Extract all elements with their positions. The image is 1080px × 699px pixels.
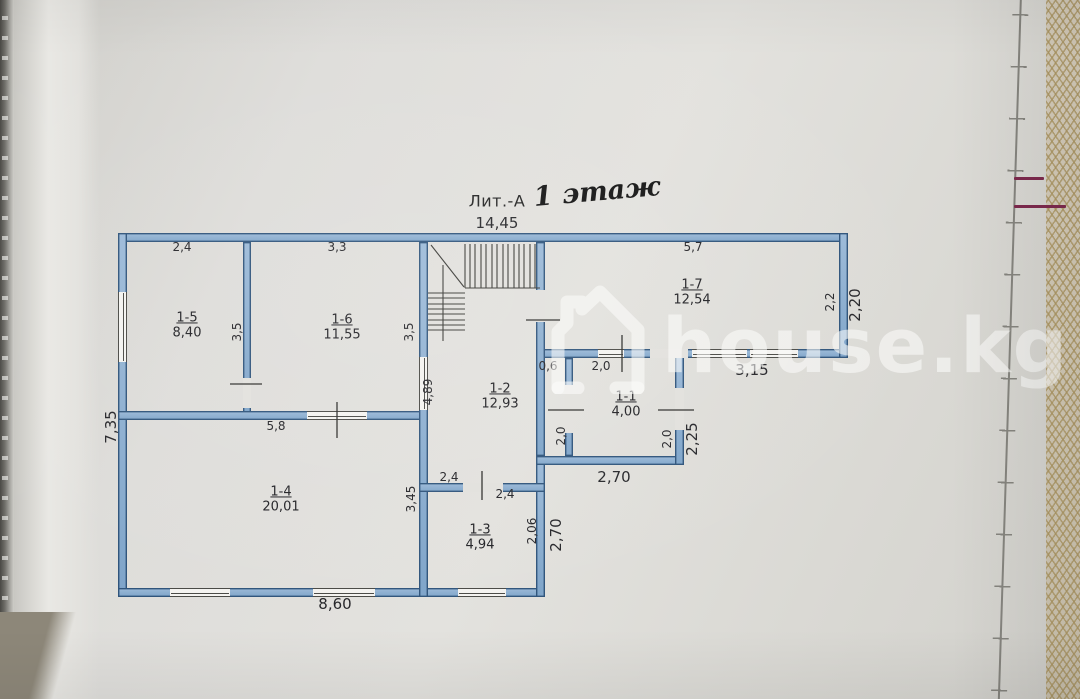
dim-bottom-width: 8,60 — [318, 595, 351, 613]
dim-r4-right: 3,45 — [404, 486, 418, 513]
red-pen-mark — [1014, 177, 1044, 180]
dim-r6-right: 3,5 — [402, 322, 416, 341]
dim-r5-top: 2,4 — [172, 240, 191, 254]
dim-r2-left: 4,89 — [421, 379, 435, 406]
litera-label: Лит.-А — [469, 192, 526, 211]
room-label-1-7: 1-7 12,54 — [673, 278, 710, 307]
dim-r7-right-outer: 2,20 — [846, 288, 864, 321]
dim-r7-top: 5,7 — [683, 240, 702, 254]
dim-r7-bottom: 3,15 — [735, 361, 768, 379]
plan-linework — [0, 0, 1080, 699]
red-pen-mark — [1014, 205, 1066, 208]
dim-corridor-top: 0,6 — [538, 359, 557, 373]
dim-r2-bottom-lower: 2,4 — [495, 487, 514, 501]
dim-r2-bottom-upper: 2,4 — [439, 470, 458, 484]
dim-r6-top: 3,3 — [327, 240, 346, 254]
room-label-1-6: 1-6 11,55 — [323, 313, 360, 342]
dim-left-height: 7,35 — [102, 410, 120, 443]
dim-total-width: 14,45 — [476, 214, 519, 232]
dim-r1-left: 2,0 — [554, 426, 568, 445]
staircase — [428, 244, 540, 341]
room-label-1-3: 1-3 4,94 — [466, 523, 495, 552]
dim-r4-top: 5,8 — [266, 419, 285, 433]
dim-r1-top: 2,0 — [591, 359, 610, 373]
room-label-1-2: 1-2 12,93 — [481, 382, 518, 411]
dim-r5-right: 3,5 — [230, 322, 244, 341]
dim-r3-right-outer: 2,70 — [547, 518, 565, 551]
dim-r7-right-inner: 2,2 — [823, 292, 837, 311]
scanned-floorplan-page: Лит.-А 1 этаж — [0, 0, 1080, 699]
right-lace-edge — [1046, 0, 1080, 699]
bottom-left-dark-corner — [0, 612, 100, 699]
dim-r3-right-inner: 2,06 — [525, 518, 539, 545]
room-label-1-4: 1-4 20,01 — [262, 485, 299, 514]
room-label-1-5: 1-5 8,40 — [173, 311, 202, 340]
room-label-1-1: 1-1 4,00 — [612, 390, 641, 419]
floor-plan: Лит.-А 1 этаж — [0, 0, 1080, 699]
dim-r1-bottom: 2,70 — [597, 468, 630, 486]
left-stitched-binding — [0, 0, 14, 699]
dim-r1-right-outer: 2,25 — [683, 422, 701, 455]
dim-r1-right-inner: 2,0 — [660, 429, 674, 448]
